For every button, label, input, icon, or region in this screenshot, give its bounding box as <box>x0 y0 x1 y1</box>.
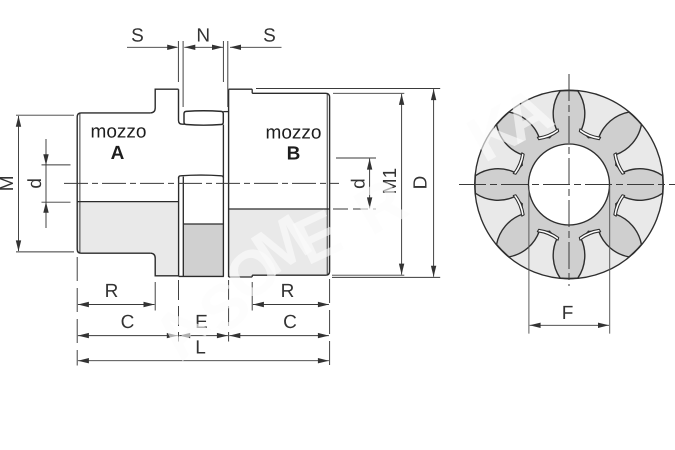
svg-text:M: M <box>0 175 18 191</box>
svg-text:S: S <box>263 26 276 47</box>
svg-text:A: A <box>111 143 125 164</box>
svg-text:D: D <box>410 176 431 190</box>
svg-text:R: R <box>342 163 418 248</box>
svg-text:d: d <box>25 178 46 189</box>
svg-text:B: B <box>287 144 301 165</box>
svg-text:mozzo: mozzo <box>91 122 147 143</box>
svg-text:R: R <box>105 281 119 302</box>
svg-text:C: C <box>283 312 297 333</box>
svg-text:S: S <box>131 26 144 47</box>
svg-text:N: N <box>196 26 210 47</box>
svg-text:mozzo: mozzo <box>266 123 322 144</box>
svg-text:C: C <box>121 312 135 333</box>
svg-text:F: F <box>562 303 574 324</box>
